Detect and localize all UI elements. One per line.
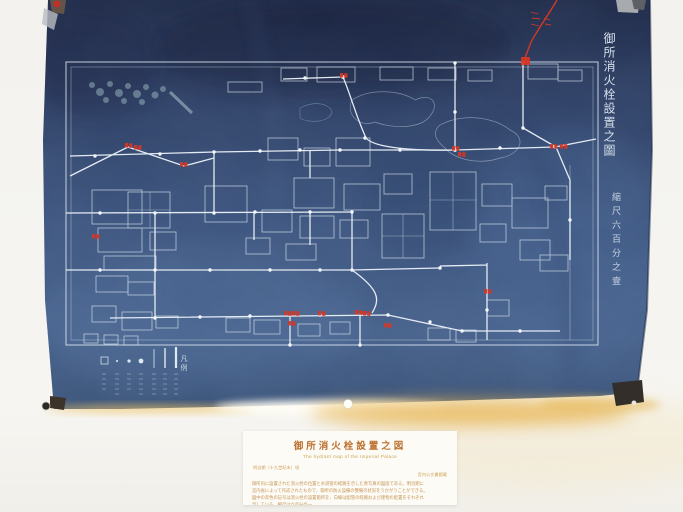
caption-subtitle: The hydrant map of the Imperial Palace xyxy=(243,454,457,459)
exhibit-photo: 御所消火栓設置之圖 縮尺六百分之壹 凡例 御所消火栓設置之図 The hydra… xyxy=(0,0,683,512)
caption-body: 御所内に設置された消火栓の位置と水道管の経路を示した青写真の図面である。明治期に… xyxy=(243,481,457,505)
caption-body-line: 御所内に設置された消火栓の位置と水道管の経路を示した青写真の図面である。明治期に xyxy=(252,481,448,488)
caption-meta-left: 明治期（十九世紀末）頃 xyxy=(253,465,299,471)
pin-bottom-left xyxy=(42,402,50,410)
caption-body-line: 図中の赤色の記号は消火栓の設置箇所を、白線は配管の経路および建物の配置をそれぞれ xyxy=(252,495,448,502)
caption-body-line: 宮内省によって作成されたもので、御所の防火設備の整備の状況をうかがうことができる… xyxy=(252,488,448,495)
caption-body-line: 示している。縮尺は六百分の一。 xyxy=(252,502,448,505)
pin-red-top-left xyxy=(54,1,61,8)
pin-bottom-right xyxy=(632,401,637,406)
legend-title: 凡例 xyxy=(179,355,189,373)
blueprint-map xyxy=(25,0,660,412)
caption-title: 御所消火栓設置之図 xyxy=(243,438,457,452)
tape-bottom-right xyxy=(612,380,644,406)
tape-bottom-left xyxy=(50,396,66,410)
pin-bottom-center xyxy=(344,400,353,409)
map-title-vertical: 御所消火栓設置之圖 xyxy=(601,32,618,158)
map-scale-vertical: 縮尺六百分之壹 xyxy=(609,192,622,290)
caption-meta-right: 宮内公文書館蔵 xyxy=(418,472,447,478)
tape-top-right-dark xyxy=(632,0,646,10)
caption-card: 御所消火栓設置之図 The hydrant map of the Imperia… xyxy=(243,431,457,505)
